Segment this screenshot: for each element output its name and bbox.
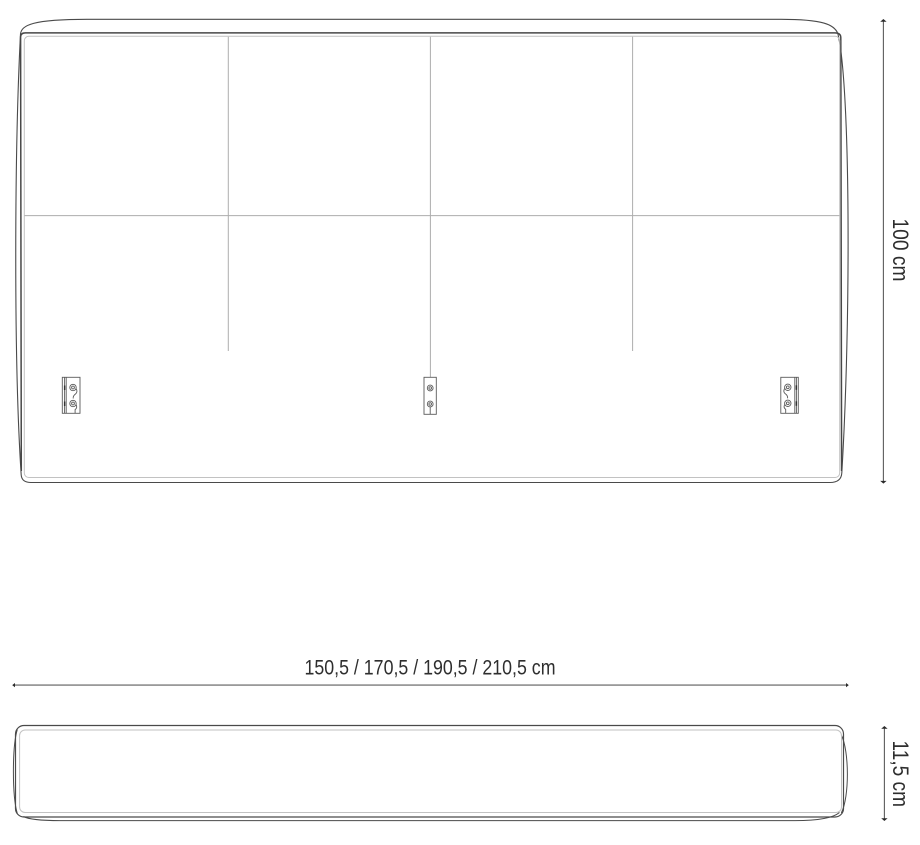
- svg-text:11,5 cm: 11,5 cm: [888, 741, 913, 808]
- svg-text:150,5 / 170,5 / 190,5 / 210,5: 150,5 / 170,5 / 190,5 / 210,5 cm: [305, 655, 556, 679]
- svg-text:100 cm: 100 cm: [888, 219, 913, 282]
